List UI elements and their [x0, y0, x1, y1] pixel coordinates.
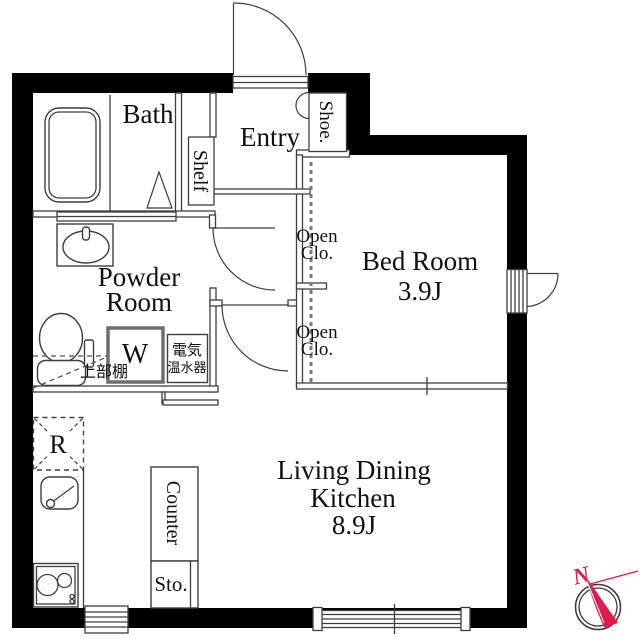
ldk-size: 8.9J: [332, 510, 376, 540]
wall-bedroom-top: [347, 135, 527, 155]
wall-entry-left-upper: [210, 93, 216, 137]
stove: [34, 564, 79, 608]
floor-plan-svg: Shoe. Shelf W 電気 温水器 上部棚: [0, 0, 640, 639]
ldk-label-1: Living Dining: [277, 455, 431, 485]
wall-hall-powder-stub: [210, 215, 216, 228]
wall-bedroom-ldk-partition: [297, 383, 508, 389]
toilet-bowl: [40, 314, 83, 363]
open-clo-bottom-2: Clo.: [301, 339, 333, 360]
wall-right: [507, 135, 527, 628]
ldk-label-2: Kitchen: [310, 483, 396, 513]
upper-shelf-label: 上部棚: [80, 363, 128, 381]
water-heater-label-2: 温水器: [167, 360, 206, 375]
entry-step: [214, 189, 310, 194]
water-heater-label-1: 電気: [172, 342, 202, 359]
vent-window: [85, 606, 128, 633]
open-clo-top-2: Clo.: [301, 243, 333, 264]
wall-powder-bottom: [33, 386, 218, 392]
vanity-faucet: [83, 227, 90, 240]
wall-left: [12, 73, 33, 628]
wall-bath-right: [176, 93, 182, 215]
wall-door2-left-stub: [210, 300, 222, 306]
entry-label: Entry: [240, 122, 300, 152]
fridge-label: R: [49, 430, 67, 459]
wall-top-left: [12, 73, 233, 93]
ldk-window-jamb-left: [313, 608, 322, 631]
shoe-label: Shoe.: [315, 101, 336, 144]
counter-label: Counter: [162, 481, 184, 546]
toilet-tank: [38, 361, 86, 386]
floor-plan: Shoe. Shelf W 電気 温水器 上部棚: [0, 0, 640, 639]
kitchen-faucet-base: [47, 500, 55, 508]
wall-step-horiz: [163, 400, 218, 405]
bedroom-window: [507, 270, 527, 314]
bath-label: Bath: [123, 99, 174, 129]
ldk-window-jamb-right: [461, 608, 470, 631]
bathtub-outer: [45, 108, 100, 202]
bedroom-label: Bed Room: [362, 246, 478, 276]
shelf-label: Shelf: [189, 150, 211, 193]
shelf-unit: Shelf: [189, 137, 215, 205]
bedroom-size: 3.9J: [398, 276, 442, 306]
powder-room-label-2: Room: [106, 287, 172, 317]
storage-label: Sto.: [154, 572, 187, 596]
